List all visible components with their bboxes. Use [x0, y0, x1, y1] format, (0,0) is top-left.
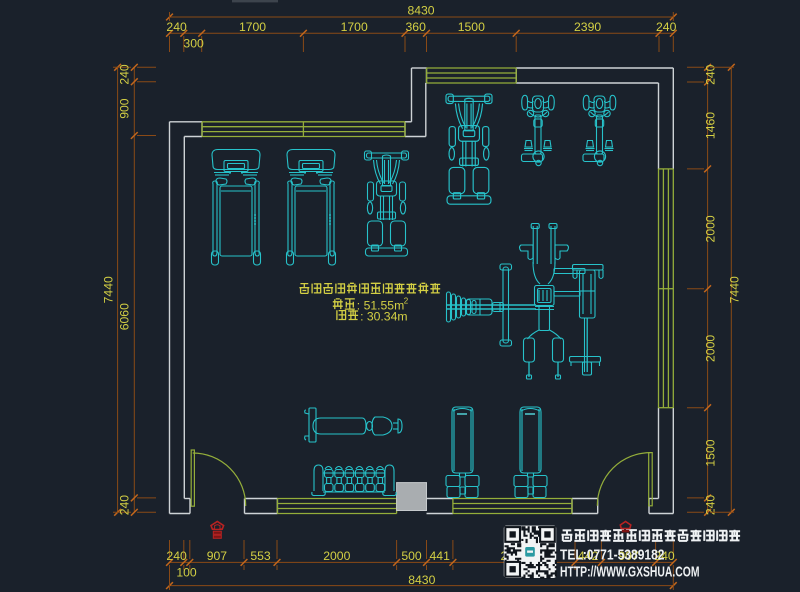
svg-text:8430: 8430	[407, 4, 434, 18]
svg-text:2000: 2000	[704, 215, 718, 242]
svg-text:300: 300	[183, 37, 204, 51]
svg-text:HTTP://WWW.GXSHUA.COM: HTTP://WWW.GXSHUA.COM	[560, 565, 700, 581]
svg-text:2390: 2390	[574, 20, 601, 34]
svg-text:100: 100	[176, 565, 197, 579]
svg-text:240: 240	[166, 549, 187, 563]
svg-text:6060: 6060	[118, 303, 132, 330]
svg-text:240: 240	[118, 64, 132, 85]
svg-text:240: 240	[166, 20, 187, 34]
svg-text:1460: 1460	[704, 112, 718, 139]
svg-text:360: 360	[406, 20, 427, 34]
svg-text:2000: 2000	[323, 549, 350, 563]
svg-text:900: 900	[118, 98, 132, 119]
svg-text:240: 240	[118, 495, 132, 516]
svg-text:240: 240	[656, 20, 677, 34]
svg-text:500: 500	[401, 549, 422, 563]
svg-text:8430: 8430	[408, 573, 435, 587]
svg-text:2: 2	[404, 297, 409, 306]
svg-text:441: 441	[430, 549, 451, 563]
svg-text:1500: 1500	[458, 20, 485, 34]
svg-text:: 30.34m: : 30.34m	[360, 309, 407, 323]
svg-text:2000: 2000	[704, 335, 718, 362]
svg-text:1500: 1500	[704, 439, 718, 466]
svg-text:553: 553	[250, 549, 271, 563]
svg-text:907: 907	[207, 549, 228, 563]
svg-text:7440: 7440	[102, 276, 116, 303]
svg-text:1700: 1700	[239, 20, 266, 34]
svg-text:1700: 1700	[341, 20, 368, 34]
svg-text:7440: 7440	[727, 276, 741, 303]
svg-text:TEL:0771-5389182: TEL:0771-5389182	[560, 548, 665, 564]
